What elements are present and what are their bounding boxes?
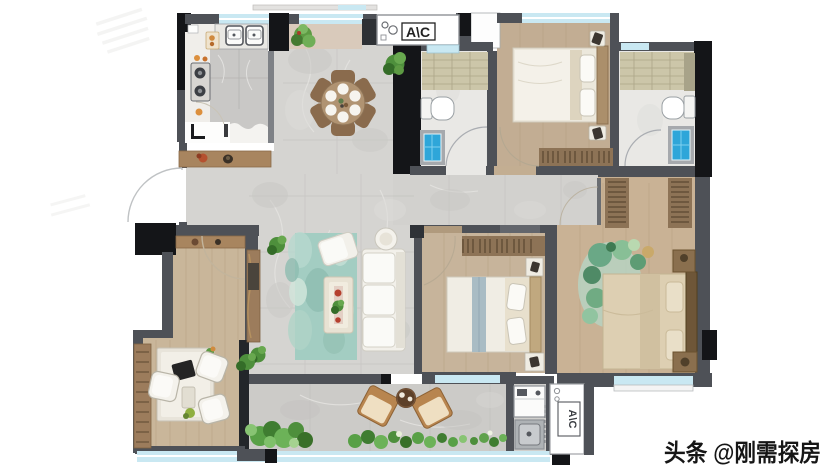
- svg-text:头条 @刚需探房: 头条 @刚需探房: [664, 439, 821, 467]
- svg-text:A\C: A\C: [566, 410, 578, 429]
- svg-text:A\C: A\C: [406, 24, 430, 40]
